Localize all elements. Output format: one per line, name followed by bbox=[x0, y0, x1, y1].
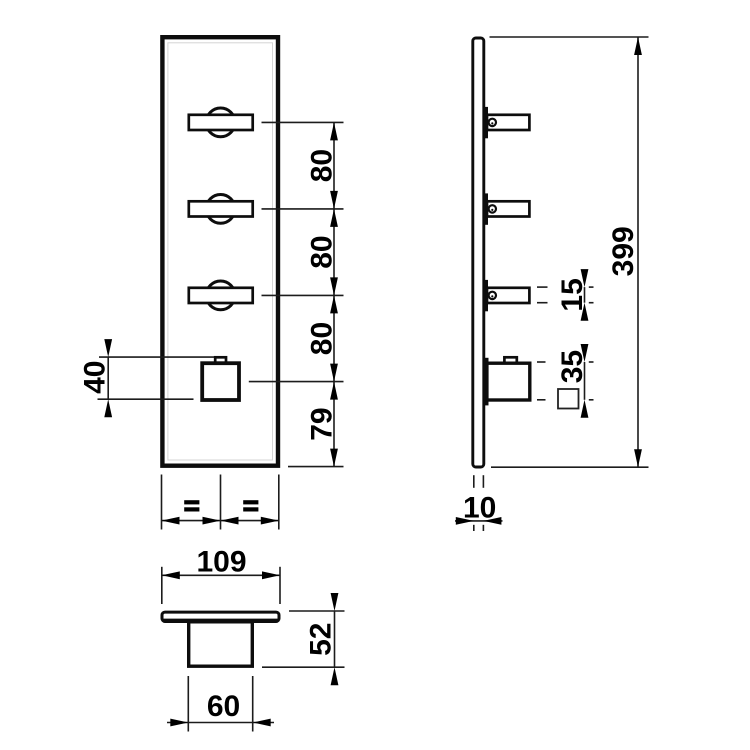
svg-text:80: 80 bbox=[305, 322, 338, 355]
svg-text:60: 60 bbox=[207, 690, 240, 723]
svg-text:10: 10 bbox=[463, 492, 496, 525]
svg-text:80: 80 bbox=[305, 235, 338, 268]
svg-text:35: 35 bbox=[556, 350, 589, 383]
svg-text:40: 40 bbox=[78, 361, 111, 394]
svg-text:399: 399 bbox=[607, 226, 640, 276]
svg-text:80: 80 bbox=[305, 149, 338, 182]
svg-text:52: 52 bbox=[304, 623, 337, 656]
svg-text:109: 109 bbox=[196, 546, 246, 579]
svg-text:79: 79 bbox=[305, 407, 338, 440]
svg-text:15: 15 bbox=[556, 278, 589, 311]
